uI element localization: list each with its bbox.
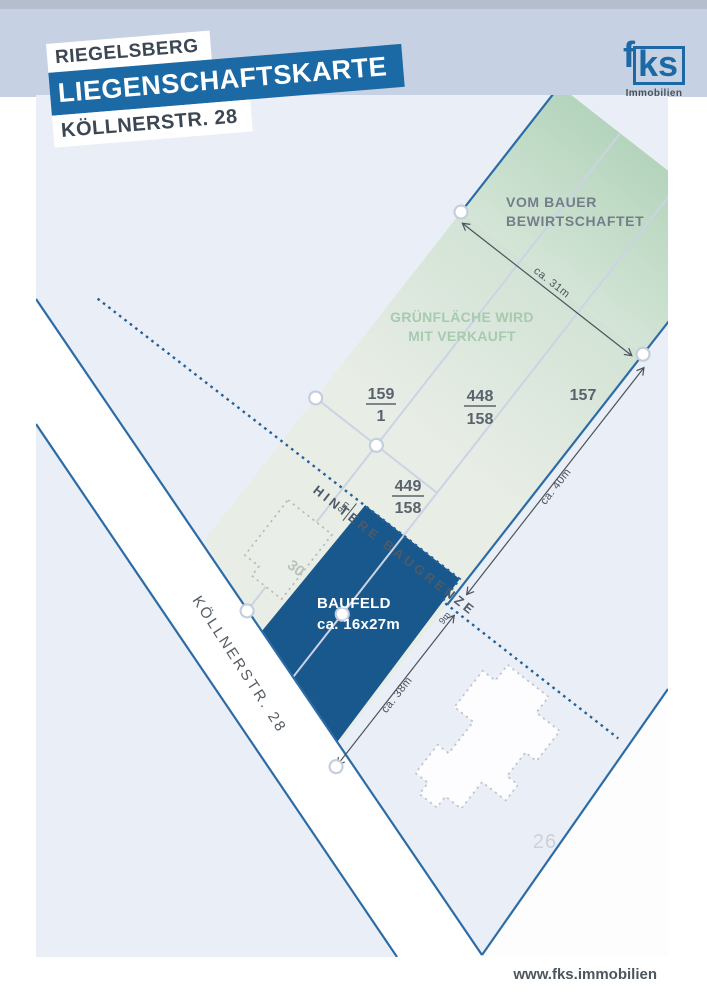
fks-logo-subtitle: Immobilien	[623, 88, 685, 99]
parcel-448-num: 448	[467, 388, 494, 405]
parcel-159-num: 159	[368, 386, 395, 403]
footer-url: www.fks.immobilien	[513, 966, 657, 983]
vom-bauer-label-2: BEWIRTSCHAFTET	[506, 213, 644, 229]
baufeld-label-1: BAUFELD	[317, 595, 391, 612]
flyer-page: ca. 31m ca. 40m ca. 38m 9m 9m HINTERE BA…	[0, 0, 707, 1000]
fks-logo-ks: ks	[633, 46, 685, 85]
parcel-448-sub: 158	[467, 411, 494, 428]
parcel-449-sub: 158	[395, 500, 422, 517]
baufeld-label-2: ca. 16x27m	[317, 616, 400, 633]
parcel-449-num: 449	[395, 478, 422, 495]
fks-logo-f: f	[623, 40, 635, 71]
gruenflaeche-label-1: GRÜNFLÄCHE WIRD	[390, 309, 534, 325]
cadastral-map: ca. 31m ca. 40m ca. 38m 9m 9m HINTERE BA…	[0, 0, 707, 1000]
parcel-159-sub: 1	[377, 408, 386, 425]
fks-logo: f ks Immobilien	[623, 40, 685, 99]
gruenflaeche-label-2: MIT VERKAUFT	[408, 328, 516, 344]
vom-bauer-label-1: VOM BAUER	[506, 194, 597, 210]
parcel-157-num: 157	[570, 387, 597, 404]
fks-logo-mark: f ks	[623, 40, 685, 85]
house-26-label: 26	[533, 831, 557, 853]
